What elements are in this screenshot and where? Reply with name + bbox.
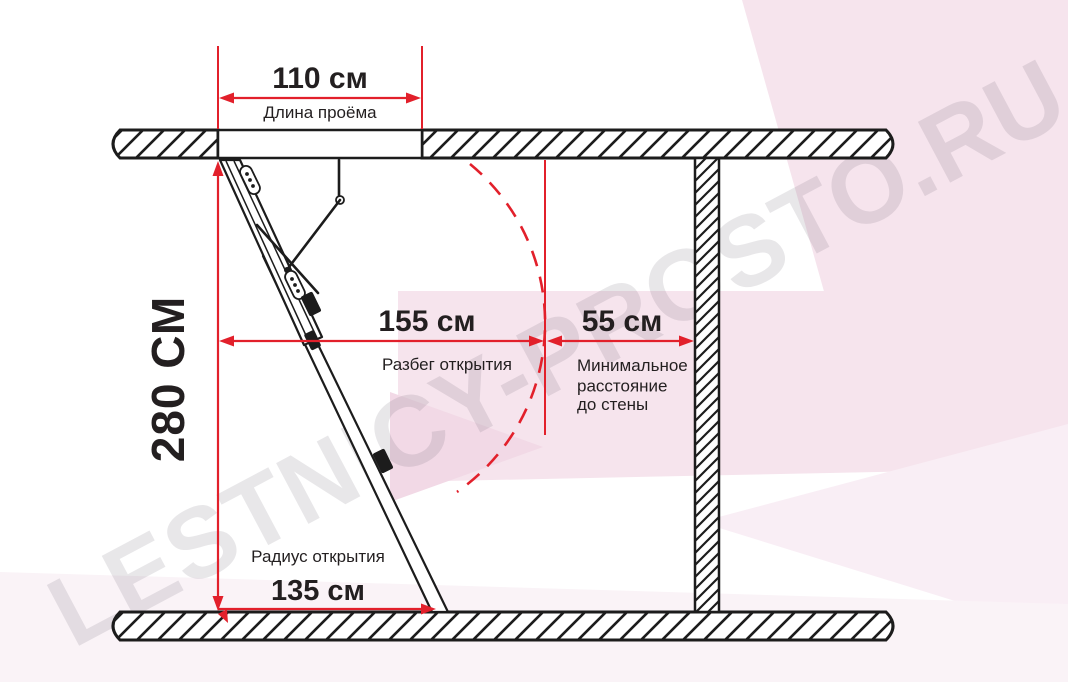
dimension-opening-value: 110 см <box>272 62 368 95</box>
diagram-canvas: LESTNICY-PROSTO.RU <box>0 0 1068 682</box>
wall-hatch <box>695 158 719 612</box>
hatch-opening-box <box>218 130 422 158</box>
dimension-wall-clearance-value: 55 см <box>582 305 663 338</box>
ceiling <box>113 130 893 158</box>
wall <box>695 158 719 612</box>
dimension-height-value: 280 СМ <box>142 296 194 462</box>
hinge-bolt <box>245 172 249 176</box>
hinge-bolt <box>296 289 300 293</box>
attic-ladder-dimension-diagram: LESTNICY-PROSTO.RU <box>0 0 1068 682</box>
hinge-bolt <box>293 283 297 287</box>
dimension-radius-value: 135 см <box>271 575 365 607</box>
dimension-opening-label: Длина проёма <box>263 103 377 122</box>
ceiling-right-hatch <box>422 130 893 158</box>
dimension-wall-clearance-label-line1: Минимальное <box>577 356 688 375</box>
ceiling-left-hatch <box>113 130 218 158</box>
dimension-opening: 110 см Длина проёма <box>218 46 422 129</box>
floor <box>113 612 893 640</box>
arrowhead-right <box>406 93 421 104</box>
mechanism-rod-diagonal <box>286 200 340 271</box>
door-inner-edge-left <box>226 161 309 342</box>
arrowhead-left <box>219 336 234 347</box>
dimension-run-value: 155 см <box>378 305 475 338</box>
arrowhead-left <box>219 93 234 104</box>
dimension-run-label: Разбег открытия <box>382 355 512 374</box>
dimension-wall-clearance-label-line3: до стены <box>577 395 648 414</box>
dimension-radius-label: Радиус открытия <box>251 547 385 566</box>
hinge-bolt <box>248 178 252 182</box>
hinge-bolt <box>290 277 294 281</box>
hinge-bolt <box>251 184 255 188</box>
floor-hatch <box>113 612 893 640</box>
dimension-wall-clearance-label-line2: расстояние <box>577 377 668 396</box>
